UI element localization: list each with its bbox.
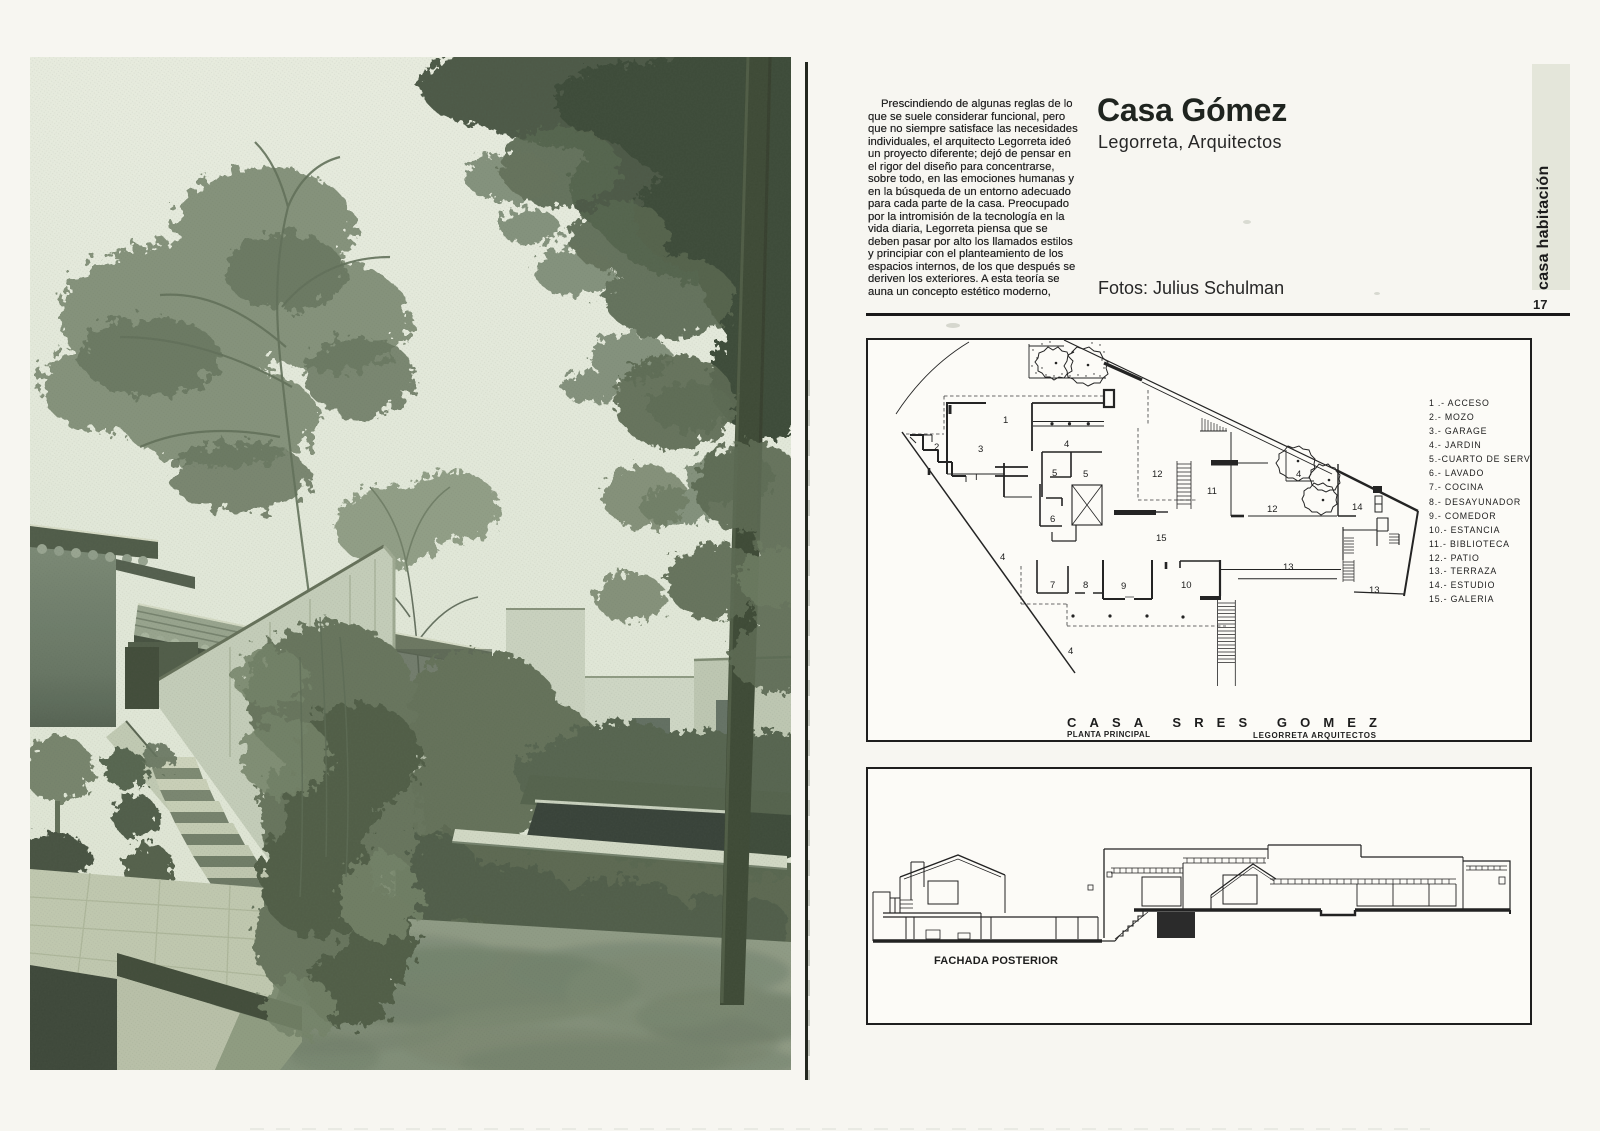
svg-text:7.- COCINA: 7.- COCINA [1429,482,1484,492]
svg-text:12: 12 [1267,504,1278,515]
svg-text:13: 13 [1369,585,1380,596]
svg-text:3.- GARAGE: 3.- GARAGE [1429,426,1487,436]
svg-text:13: 13 [1283,562,1294,573]
svg-text:4: 4 [1064,439,1069,450]
svg-text:11: 11 [1207,486,1217,497]
svg-text:CASA SRES GOMEZ: CASA SRES GOMEZ [1067,715,1377,730]
svg-text:5: 5 [1052,468,1057,479]
svg-text:1: 1 [1003,415,1008,426]
svg-text:8.- DESAYUNADOR: 8.- DESAYUNADOR [1429,497,1521,507]
svg-text:PLANTA PRINCIPAL: PLANTA PRINCIPAL [1067,730,1150,739]
svg-text:8: 8 [1083,580,1088,591]
svg-text:7: 7 [1050,580,1055,591]
svg-text:10: 10 [1181,580,1192,591]
svg-text:1 .- ACCESO: 1 .- ACCESO [1429,398,1490,408]
svg-text:4: 4 [1000,552,1005,563]
svg-text:9.- COMEDOR: 9.- COMEDOR [1429,511,1496,521]
svg-text:LEGORRETA ARQUITECTOS: LEGORRETA ARQUITECTOS [1253,731,1377,740]
svg-text:9: 9 [1121,581,1126,592]
svg-text:15: 15 [1156,533,1167,544]
svg-text:13.- TERRAZA: 13.- TERRAZA [1429,566,1497,576]
svg-text:10.- ESTANCIA: 10.- ESTANCIA [1429,525,1500,535]
svg-text:12: 12 [1152,469,1163,480]
svg-text:5.-CUARTO DE SERVIC: 5.-CUARTO DE SERVIC [1429,454,1532,464]
svg-text:3: 3 [978,444,983,455]
svg-text:12.- PATIO: 12.- PATIO [1429,553,1480,563]
svg-text:2.- MOZO: 2.- MOZO [1429,412,1475,422]
svg-text:FACHADA POSTERIOR: FACHADA POSTERIOR [934,955,1058,967]
svg-text:14.- ESTUDIO: 14.- ESTUDIO [1429,580,1495,590]
svg-text:11.- BIBLIOTECA: 11.- BIBLIOTECA [1429,539,1510,549]
svg-text:4: 4 [1068,646,1073,657]
svg-text:4: 4 [1296,469,1301,480]
svg-text:4.- JARDIN: 4.- JARDIN [1429,440,1481,450]
svg-text:6: 6 [1050,514,1055,525]
svg-text:15.- GALERIA: 15.- GALERIA [1429,594,1494,604]
svg-text:6.- LAVADO: 6.- LAVADO [1429,468,1484,478]
svg-text:14: 14 [1352,502,1363,513]
svg-text:I: I [975,472,978,483]
svg-text:5: 5 [1083,469,1088,480]
svg-text:2: 2 [934,442,939,453]
